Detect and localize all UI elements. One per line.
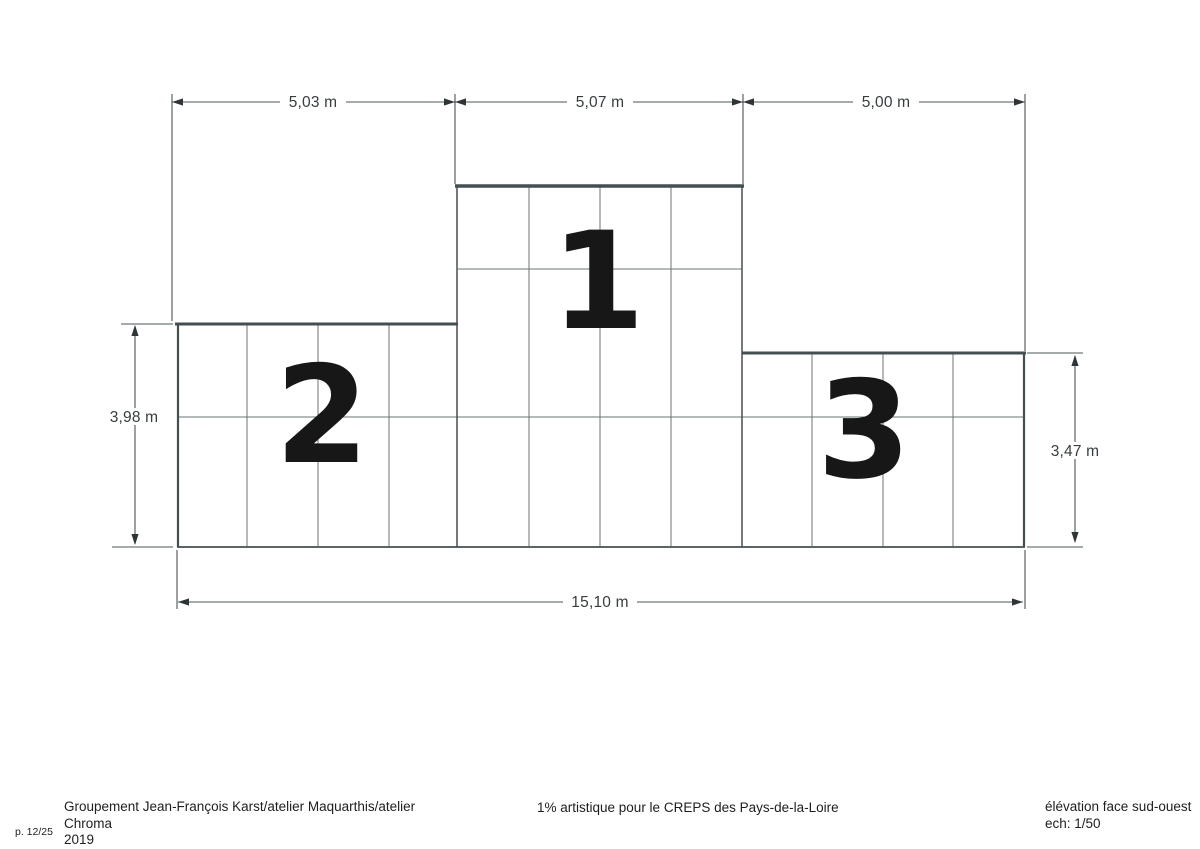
arrowhead-icon — [178, 598, 189, 605]
arrowhead-icon — [743, 98, 754, 105]
dimension-total-width: 15,10 m — [177, 550, 1025, 611]
podium-3-rank-label: 3 — [817, 352, 911, 509]
footer-view-title: élévation face sud-ouest — [1045, 799, 1191, 816]
podium-1-rank-label: 1 — [551, 203, 645, 360]
footer-project-title: 1% artistique pour le CREPS des Pays-de-… — [537, 800, 839, 817]
arrowhead-icon — [444, 98, 455, 105]
elevation-drawing: 2 1 3 5,03 m 5,07 — [0, 0, 1200, 849]
dimension-label-height-right: 3,47 m — [1051, 443, 1100, 460]
dimension-left-height: 3,98 m — [104, 324, 173, 547]
dimension-label-width-left: 5,03 m — [289, 94, 338, 111]
podium-2-rank-label: 2 — [275, 337, 369, 494]
footer-credits: Groupement Jean-François Karst/atelier M… — [64, 799, 464, 849]
arrowhead-icon — [131, 325, 138, 336]
arrowhead-icon — [1071, 532, 1078, 543]
arrowhead-icon — [1071, 355, 1078, 366]
arrowhead-icon — [1014, 98, 1025, 105]
footer-view-info: élévation face sud-ouest ech: 1/50 — [1045, 799, 1191, 832]
dimension-label-height-left: 3,98 m — [110, 409, 159, 426]
page-number: p. 12/25 — [15, 826, 53, 838]
drawing-sheet: 2 1 3 5,03 m 5,07 — [0, 0, 1200, 849]
dimension-label-width-center: 5,07 m — [576, 94, 625, 111]
footer-credit-line1: Groupement Jean-François Karst/atelier M… — [64, 799, 464, 832]
arrowhead-icon — [732, 98, 743, 105]
arrowhead-icon — [172, 98, 183, 105]
arrowhead-icon — [1012, 598, 1023, 605]
arrowhead-icon — [131, 534, 138, 545]
dimension-label-total-width: 15,10 m — [571, 594, 628, 611]
arrowhead-icon — [455, 98, 466, 105]
dimension-right-height: 3,47 m — [1027, 353, 1105, 547]
footer-credit-year: 2019 — [64, 832, 464, 849]
footer-scale: ech: 1/50 — [1045, 816, 1191, 833]
dimension-label-width-right: 5,00 m — [862, 94, 911, 111]
podium-structure: 2 1 3 — [175, 186, 1026, 547]
